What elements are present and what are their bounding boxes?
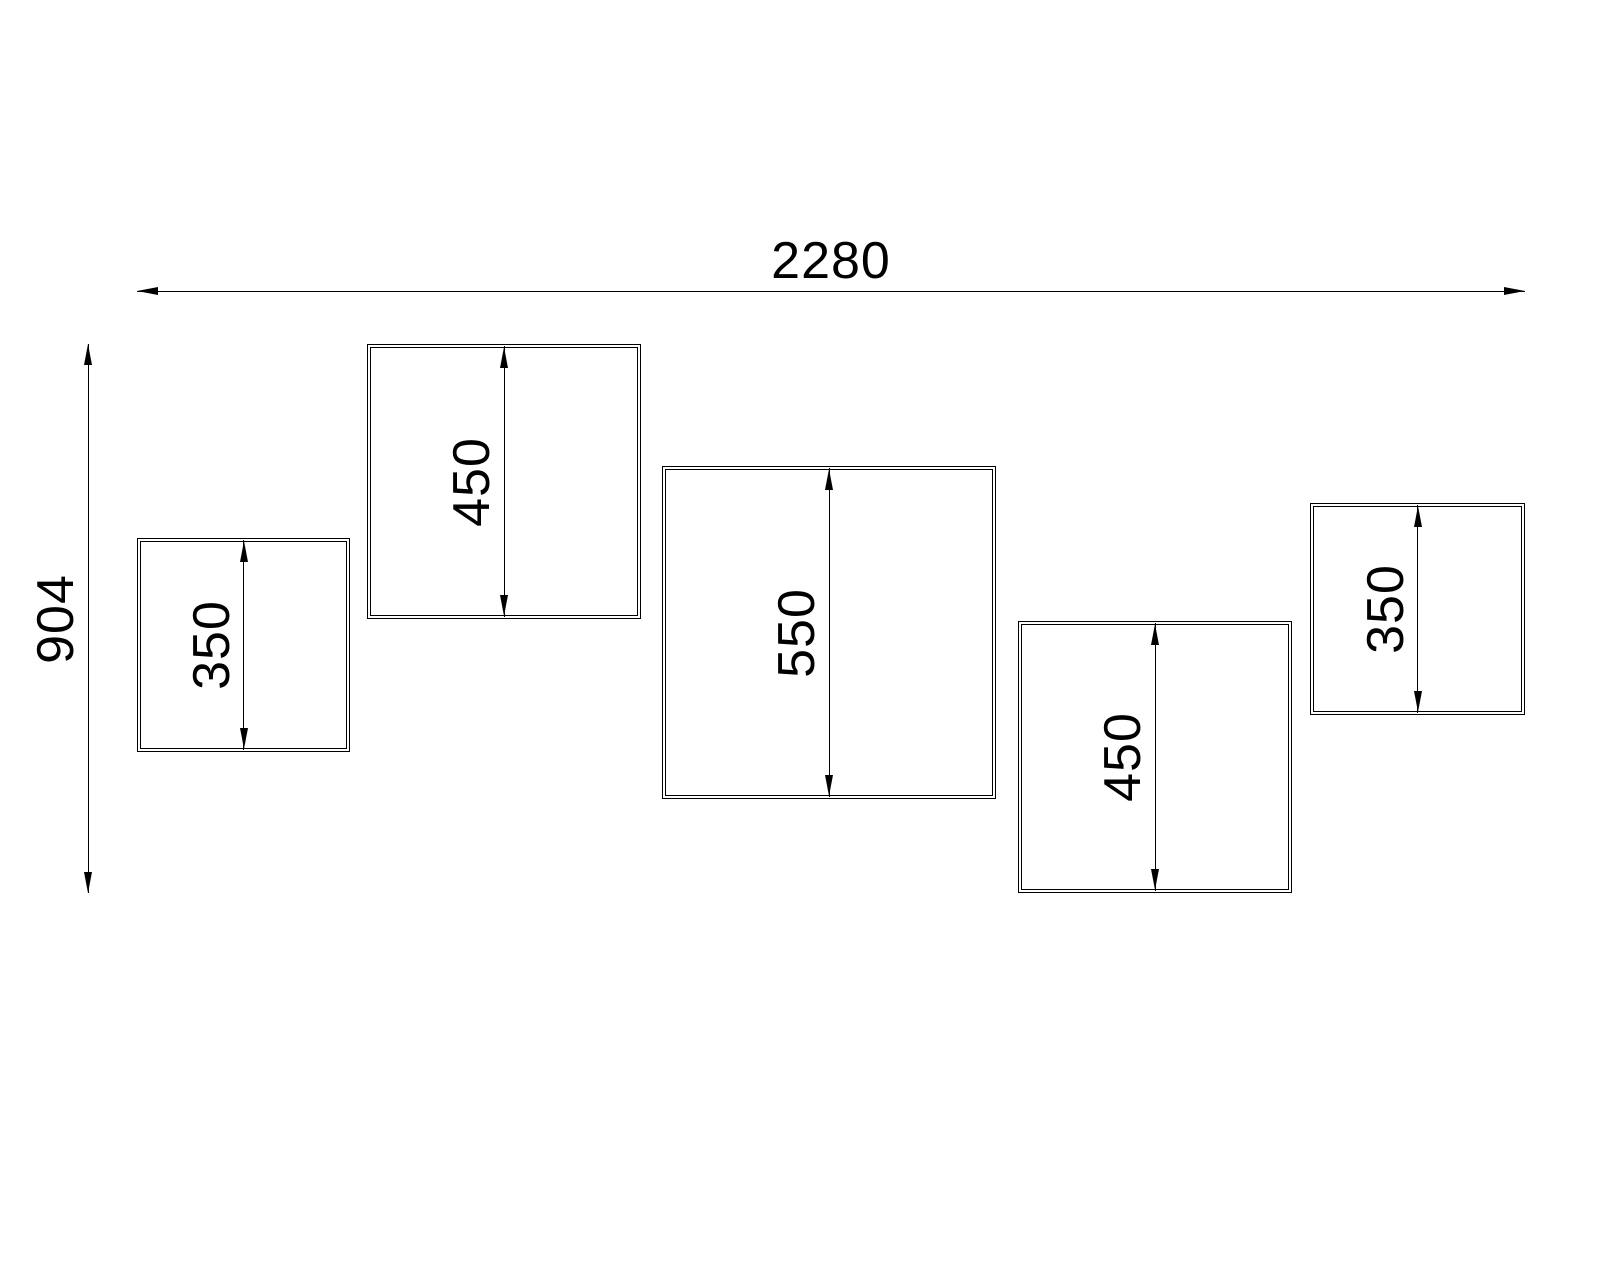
- cube-450-upper: 450: [367, 344, 641, 619]
- cube-height-label: 350: [1360, 564, 1412, 654]
- dimension-line: [504, 346, 505, 617]
- cube-height-label: 350: [186, 600, 238, 690]
- dimension-line: [1155, 623, 1156, 891]
- cube-450-lower: 450: [1018, 621, 1292, 893]
- arrow-left-icon: [137, 287, 158, 295]
- arrow-down-icon: [240, 728, 248, 749]
- arrow-down-icon: [825, 775, 833, 796]
- arrow-up-icon: [500, 347, 508, 368]
- dimension-line: [88, 344, 89, 893]
- dimension-line: [1417, 505, 1418, 713]
- arrow-down-icon: [1151, 869, 1159, 890]
- arrow-up-icon: [825, 469, 833, 490]
- dimension-line: [243, 540, 244, 750]
- cube-height-label: 450: [446, 437, 498, 527]
- arrow-right-icon: [1504, 287, 1525, 295]
- cube-550-center: 550: [662, 466, 996, 799]
- arrow-up-icon: [1414, 506, 1422, 527]
- overall-height-label: 904: [30, 574, 82, 664]
- overall-width-label: 2280: [771, 235, 891, 287]
- cube-height-label: 550: [771, 588, 823, 678]
- cad-drawing-canvas: 2280 904 350 450 550 450 3: [0, 0, 1600, 1280]
- dimension-line: [829, 468, 830, 797]
- cube-height-label: 450: [1097, 712, 1149, 802]
- arrow-up-icon: [1151, 624, 1159, 645]
- cube-350-left: 350: [137, 538, 350, 752]
- dimension-line: [137, 291, 1525, 292]
- arrow-up-icon: [84, 344, 92, 365]
- arrow-down-icon: [1414, 691, 1422, 712]
- cube-350-right: 350: [1310, 503, 1525, 715]
- arrow-down-icon: [500, 595, 508, 616]
- arrow-down-icon: [84, 872, 92, 893]
- arrow-up-icon: [240, 541, 248, 562]
